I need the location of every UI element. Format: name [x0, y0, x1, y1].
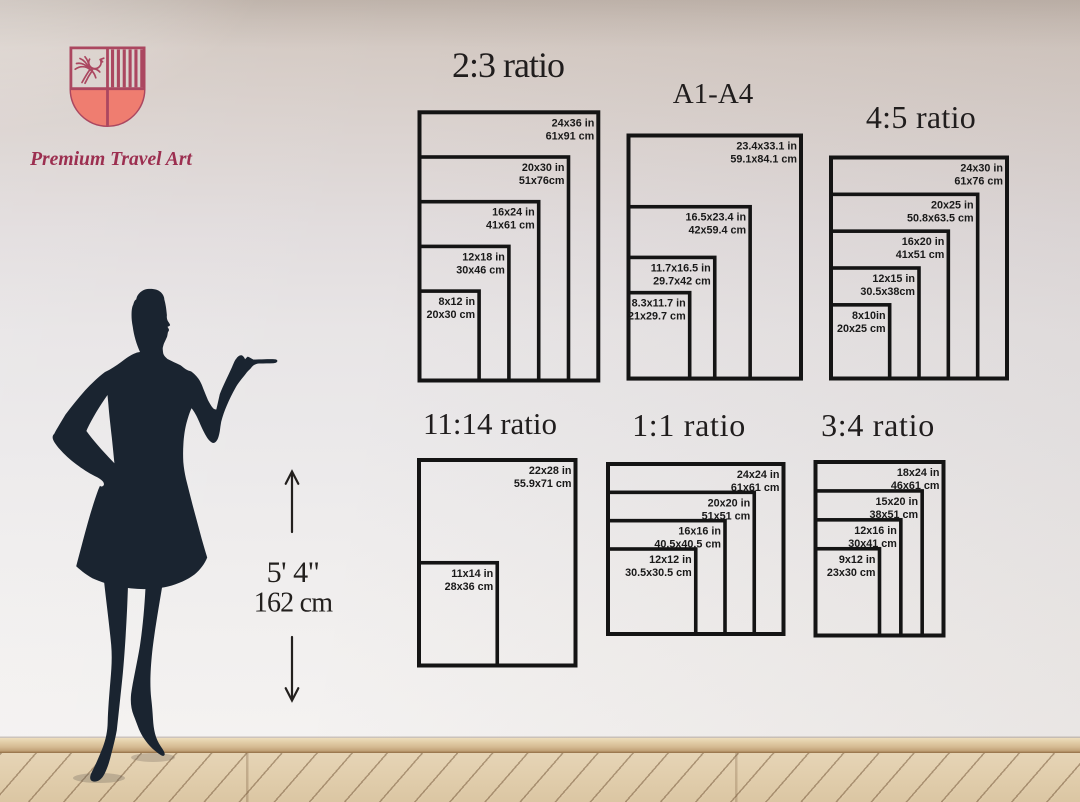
svg-text:23.4x33.1 in: 23.4x33.1 in — [736, 141, 797, 153]
svg-text:30x46 cm: 30x46 cm — [456, 264, 505, 276]
svg-text:12x18 in: 12x18 in — [462, 251, 505, 263]
svg-text:24x36 in: 24x36 in — [552, 117, 595, 129]
svg-text:23x30 cm: 23x30 cm — [827, 567, 876, 579]
svg-text:20x25 in: 20x25 in — [931, 199, 974, 211]
svg-text:16x24 in: 16x24 in — [492, 207, 535, 219]
svg-text:20x30 cm: 20x30 cm — [426, 309, 475, 321]
svg-text:12x12 in: 12x12 in — [649, 554, 692, 566]
svg-text:28x36 cm: 28x36 cm — [445, 581, 494, 593]
svg-text:55.9x71 cm: 55.9x71 cm — [514, 478, 572, 490]
svg-text:5' 4": 5' 4" — [267, 556, 320, 589]
svg-text:21x29.7 cm: 21x29.7 cm — [628, 311, 686, 323]
svg-text:29.7x42 cm: 29.7x42 cm — [653, 275, 711, 287]
svg-text:8x10in: 8x10in — [852, 310, 886, 322]
svg-text:4:5 ratio: 4:5 ratio — [866, 99, 976, 135]
svg-text:Premium Travel Art: Premium Travel Art — [29, 149, 192, 170]
svg-text:24x24 in: 24x24 in — [737, 469, 780, 481]
svg-text:22x28 in: 22x28 in — [529, 465, 572, 477]
svg-text:12x15 in: 12x15 in — [872, 273, 915, 285]
svg-text:11.7x16.5 in: 11.7x16.5 in — [651, 262, 711, 274]
svg-text:3:4 ratio: 3:4 ratio — [821, 407, 935, 443]
svg-text:16x16 in: 16x16 in — [678, 526, 721, 538]
svg-text:1:1 ratio: 1:1 ratio — [632, 407, 746, 443]
svg-text:24x30 in: 24x30 in — [960, 163, 1003, 175]
svg-text:30.5x30.5 cm: 30.5x30.5 cm — [625, 567, 692, 579]
svg-text:30.5x38cm: 30.5x38cm — [860, 286, 915, 298]
svg-text:8.3x11.7 in: 8.3x11.7 in — [632, 298, 686, 310]
svg-text:41x61 cm: 41x61 cm — [486, 220, 535, 232]
svg-text:A1-A4: A1-A4 — [673, 78, 754, 110]
svg-text:50.8x63.5 cm: 50.8x63.5 cm — [907, 212, 974, 224]
svg-text:42x59.4 cm: 42x59.4 cm — [688, 225, 746, 237]
svg-text:20x25 cm: 20x25 cm — [837, 323, 886, 335]
svg-text:2:3 ratio: 2:3 ratio — [452, 45, 564, 85]
svg-text:41x51 cm: 41x51 cm — [896, 249, 945, 261]
svg-text:16.5x23.4 in: 16.5x23.4 in — [685, 212, 746, 224]
svg-text:59.1x84.1 cm: 59.1x84.1 cm — [730, 154, 797, 166]
svg-text:20x30 in: 20x30 in — [522, 162, 565, 174]
svg-text:11x14 in: 11x14 in — [451, 568, 493, 580]
svg-text:15x20 in: 15x20 in — [876, 496, 919, 508]
svg-text:61x76 cm: 61x76 cm — [954, 176, 1003, 188]
svg-text:16x20 in: 16x20 in — [902, 236, 945, 248]
svg-text:8x12 in: 8x12 in — [438, 296, 475, 308]
svg-text:51x76cm: 51x76cm — [519, 175, 565, 187]
svg-text:20x20 in: 20x20 in — [708, 497, 751, 509]
svg-text:162 cm: 162 cm — [254, 588, 333, 619]
svg-text:61x91 cm: 61x91 cm — [546, 130, 595, 142]
svg-text:18x24 in: 18x24 in — [897, 467, 940, 479]
svg-text:12x16 in: 12x16 in — [854, 525, 897, 537]
svg-text:11:14 ratio: 11:14 ratio — [423, 406, 557, 441]
svg-text:9x12 in: 9x12 in — [839, 554, 876, 566]
